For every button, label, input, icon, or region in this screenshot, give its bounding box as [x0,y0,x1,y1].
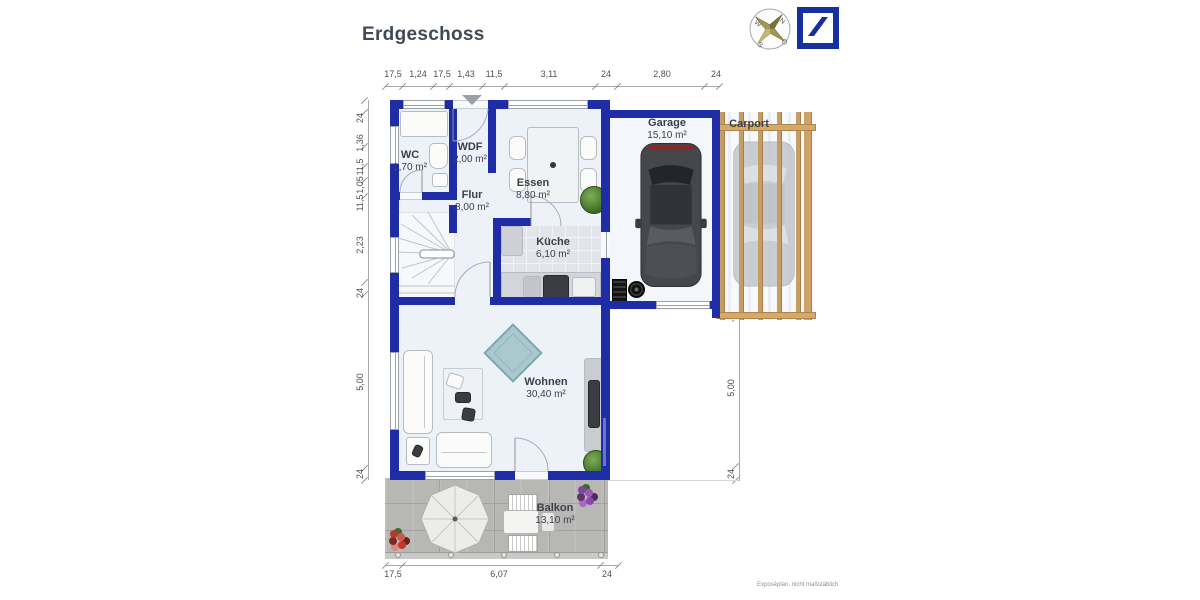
terrace-table [503,510,539,534]
dim-tick [446,83,453,90]
dim-tick [361,97,368,104]
wall [501,218,531,226]
wc-bathtub [400,111,448,137]
room-area: 13,10 m² [535,515,574,527]
dim-label: 2,23 [355,236,365,254]
window [425,471,495,480]
garage-car [634,136,708,294]
room-label-kueche: Küche 6,10 m² [536,236,570,261]
window [390,237,399,273]
sofa-seat-line [442,452,486,453]
kitchen-sink [572,277,596,297]
garage-gate [656,301,710,309]
dim-label: 17,5 [384,569,402,579]
dim-label: 3,11 [541,69,558,79]
dimension-line-left [368,100,369,480]
dim-tick [592,83,599,90]
room-label-essen: Essen 8,80 m² [516,177,550,202]
dining-chair [580,136,597,160]
room-label-wc: WC 1,70 m² [393,149,427,174]
stair-handrail [420,250,454,258]
room-name: Carport [729,118,769,131]
dim-label: 17,5 [384,69,402,79]
dimension-line-bottom [385,565,618,566]
wall [548,471,610,480]
footnote: Exposéplan, nicht maßstäblich [757,582,838,588]
dim-tick [716,83,723,90]
room-label-wohnen: Wohnen 30,40 m² [524,376,567,401]
dim-tick [615,562,622,569]
carport-post [758,112,763,320]
dim-label: 2,80 [653,69,671,79]
sofa-left [403,350,433,434]
room-area: 30,40 m² [524,389,567,401]
terrace-rail-post [501,552,507,558]
dining-chair [509,136,526,160]
dim-label: 24 [711,69,721,79]
wall [712,110,720,318]
wc-sink [432,173,448,187]
dim-label: 1,36 [355,134,365,152]
dim-tick [701,83,708,90]
flower-pot [390,530,398,538]
carport-post [777,112,782,320]
dimension-connector [608,480,739,481]
dim-tick [479,83,486,90]
brand-logo-icon [797,7,839,49]
staircase [398,212,455,300]
room-name: Essen [516,177,550,190]
tv-screen [588,380,600,428]
dim-label: 24 [355,469,365,479]
room-area: 8,80 m² [516,190,550,202]
dim-label: 24 [355,288,365,298]
room-name: WDF [453,141,487,154]
wc-toilet [429,143,448,169]
dim-tick [361,279,368,286]
dim-tick [399,83,406,90]
dimension-line-right [739,318,740,481]
room-name: Flur [455,189,489,202]
dim-label: 11,5 [355,159,365,176]
dim-label: 6,07 [490,569,508,579]
room-label-balkon: Balkon 13,10 m² [535,502,574,527]
dim-label: 1,43 [457,69,475,79]
room-name: Küche [536,236,570,249]
dimension-line-top [385,86,720,87]
dim-tick [430,83,437,90]
wc-door-opening [400,192,422,200]
room-label-garage: Garage 15,10 m² [647,117,686,142]
dim-tick [597,562,604,569]
terrace-rail-post [395,552,401,558]
tire [628,281,645,298]
room-name: Garage [647,117,686,130]
dim-label: 24 [355,113,365,123]
compass-rose: N O S W [748,7,792,51]
terrace-rail [385,552,608,559]
kitchen-cabinet [501,226,523,256]
room-name: WC [393,149,427,162]
flower-pot [578,486,586,494]
terrace-rail-post [598,552,604,558]
coffee-table [455,392,471,403]
dim-tick [501,83,508,90]
room-label-carport: Carport [729,118,769,131]
room-label-flur: Flur 8,00 m² [455,189,489,214]
carport-beam [716,312,816,319]
dining-table-center [550,162,556,168]
terrace-door-opening [515,471,548,480]
carport-post [804,112,812,320]
dim-tick [614,83,621,90]
terrace-chair [508,494,538,511]
dim-label: 24 [602,569,612,579]
dim-tick [382,562,389,569]
dim-tick [399,562,406,569]
dim-label: 1,05 [355,176,365,194]
terrace-rail-post [554,552,560,558]
room-label-wdf: WDF 2,00 m² [453,141,487,166]
room-area: 1,70 m² [393,162,427,174]
floorplan-canvas: Erdgeschoss N O S W 17,5 1,24 17,5 1,43 … [0,0,1200,600]
room-area: 8,00 m² [455,202,489,214]
dim-label: 11,5 [355,195,365,212]
carport-post [720,112,725,320]
carport-post [739,112,744,320]
wall [493,218,501,305]
window [508,100,588,109]
wall [422,192,457,200]
dim-label: 24 [601,69,611,79]
kitchen-stove [543,275,569,299]
wall [390,471,425,480]
sofa-bottom [436,432,492,468]
dim-label: 11,5 [486,69,503,79]
window [403,100,445,109]
dim-label: 24 [726,469,736,479]
wall [495,471,515,480]
side-cube [461,407,476,422]
dim-tick [382,83,389,90]
room-name: Balkon [535,502,574,515]
room-area: 15,10 m² [647,130,686,142]
wall [488,109,496,173]
entrance-arrow [462,95,482,105]
wall-watermark [603,418,606,466]
window [390,352,399,430]
dim-label: 5,00 [726,379,736,397]
terrace-chair [508,535,538,552]
wall [490,297,610,305]
parasol [420,484,490,554]
wall [390,192,400,200]
tire-stack [612,279,627,302]
room-area: 2,00 m² [453,154,487,166]
kitchen-appliance [523,276,541,298]
dim-label: 5,00 [355,373,365,391]
garage-door-opening [601,232,610,258]
room-name: Wohnen [524,376,567,389]
dim-label: 17,5 [433,69,451,79]
room-area: 6,10 m² [536,249,570,261]
carport-post [796,112,801,320]
page-title: Erdgeschoss [362,24,485,46]
wall [390,297,455,305]
dim-label: 1,24 [409,69,427,79]
sofa-seat-line [424,356,425,428]
